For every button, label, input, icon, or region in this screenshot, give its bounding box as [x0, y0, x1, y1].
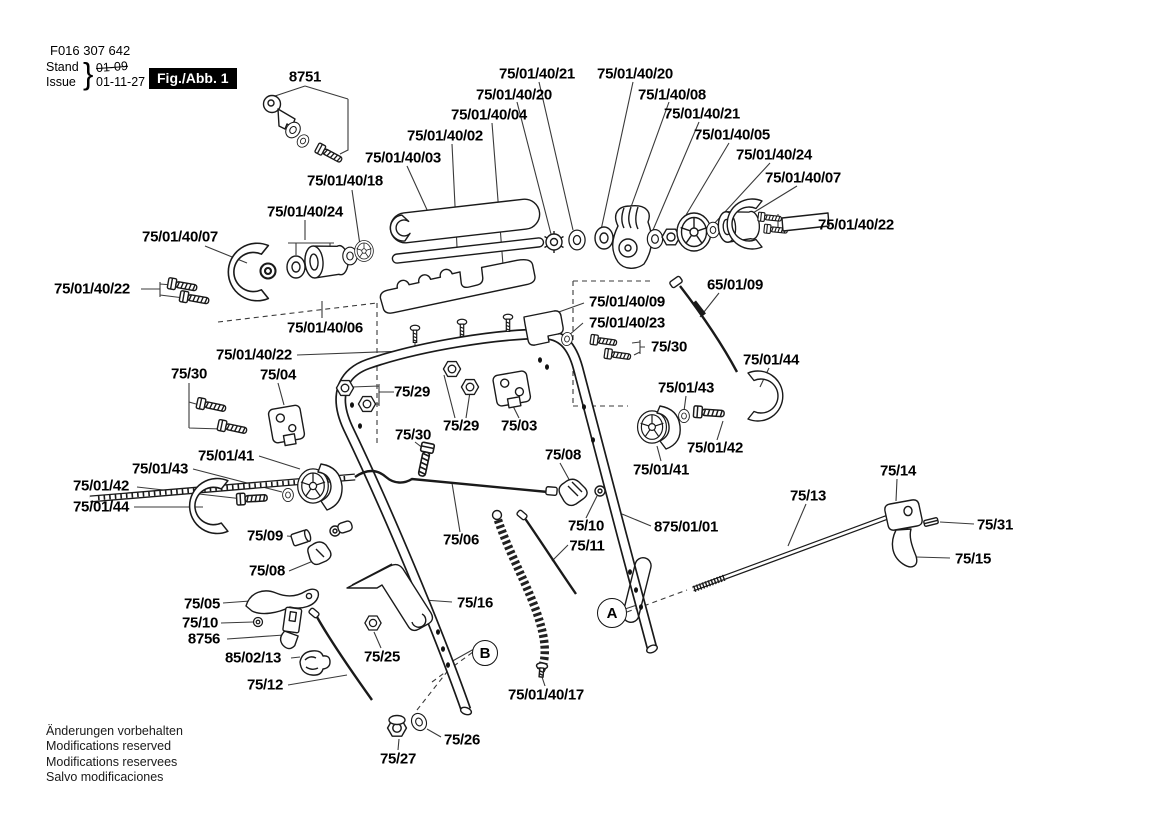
part-label: 75/01/40/18	[307, 174, 383, 189]
part-label: 75/01/40/02	[407, 129, 483, 144]
part-label: 75/01/40/03	[365, 151, 441, 166]
part-label: 75/01/44	[73, 500, 129, 515]
part-label: 75/01/40/24	[736, 148, 812, 163]
trigger-75-14-15	[885, 500, 922, 567]
part-label: 75/01/40/07	[765, 171, 841, 186]
part-label: 75/01/40/22	[54, 282, 130, 297]
part-label: 75/30	[395, 428, 431, 443]
strap-75-16	[347, 564, 432, 630]
part-label: 75/01/40/09	[589, 295, 665, 310]
part-label: 75/01/43	[132, 462, 188, 477]
issue-dates: 01-09 01-11-27	[96, 60, 145, 90]
part-label: 75/26	[444, 733, 480, 748]
part-label: 75/08	[545, 448, 581, 463]
part-label: 75/01/40/20	[597, 67, 673, 82]
part-label: 75/01/41	[198, 449, 254, 464]
part-label: 75/01/40/20	[476, 88, 552, 103]
part-label: 75/04	[260, 368, 296, 383]
stand-label: Stand	[46, 60, 79, 75]
part-label: 75/01/40/06	[287, 321, 363, 336]
screw-75-01-40-17	[536, 663, 548, 678]
part-label: 75/01/41	[633, 463, 689, 478]
part-label: 75/15	[955, 552, 991, 567]
modifications-notice-line: Modifications reserved	[46, 739, 183, 754]
part-label: 75/01/42	[687, 441, 743, 456]
part-label: 75/06	[443, 533, 479, 548]
part-label: 75/08	[249, 564, 285, 579]
part-label: 75/27	[380, 752, 416, 767]
view-marker-B: B	[472, 640, 498, 666]
view-marker-A: A	[597, 598, 627, 628]
part-label: 75/01/40/05	[694, 128, 770, 143]
clamp-75-08-mid	[559, 479, 605, 505]
modifications-notice-line: Modifications reservees	[46, 755, 183, 770]
part-label: 75/01/40/22	[818, 218, 894, 233]
part-label: 75/01/42	[73, 479, 129, 494]
parts-diagram-page: F016 307 642 Stand Issue } 01-09 01-11-2…	[0, 0, 1168, 825]
part-label: 75/29	[443, 419, 479, 434]
bracket-75-01-40-09	[524, 311, 573, 347]
part-label: 75/01/40/17	[508, 688, 584, 703]
part-label: 75/09	[247, 529, 283, 544]
lever-75-05	[246, 589, 318, 626]
part-label: 75/10	[568, 519, 604, 534]
part-label: 75/01/40/22	[216, 348, 292, 363]
part-label: 75/01/40/04	[451, 108, 527, 123]
figure-label-badge: Fig./Abb. 1	[149, 68, 237, 89]
roller-cover	[389, 198, 541, 245]
height-knob	[613, 206, 652, 269]
roller-tray	[378, 258, 537, 314]
part-label: 75/01/40/21	[664, 107, 740, 122]
bracket-75-03	[492, 370, 531, 409]
bushings-75-09	[291, 520, 354, 564]
part-label: 75/03	[501, 419, 537, 434]
part-label: 875/01/01	[654, 520, 718, 535]
bracket-75-04	[268, 405, 306, 448]
part-label: 75/11	[569, 539, 604, 554]
part-label: 75/10	[182, 616, 218, 631]
part-label: 65/01/09	[707, 278, 763, 293]
capnut-75-27	[388, 716, 407, 737]
part-label: 75/05	[184, 597, 220, 612]
part-label: 75/30	[171, 367, 207, 382]
modifications-notice: Änderungen vorbehaltenModifications rese…	[46, 724, 183, 786]
part-label: 75/01/43	[658, 381, 714, 396]
part-label: 75/1/40/08	[638, 88, 706, 103]
stand-issue-brace: }	[83, 56, 93, 92]
part-label: 85/02/13	[225, 651, 281, 666]
part-label: 75/01/40/23	[589, 316, 665, 331]
part-label: 8756	[188, 632, 220, 647]
part-label: 75/29	[394, 385, 430, 400]
part-label: 75/16	[457, 596, 493, 611]
exploded-view-artwork	[0, 0, 1168, 825]
modifications-notice-line: Änderungen vorbehalten	[46, 724, 183, 739]
part-label: 75/01/40/24	[267, 205, 343, 220]
part-label: 75/01/40/21	[499, 67, 575, 82]
clip-85-02-13	[300, 651, 330, 675]
modifications-notice-line: Salvo modificaciones	[46, 770, 183, 785]
superseded-date: 01-09	[96, 59, 129, 76]
issue-date: 01-11-27	[96, 75, 145, 90]
part-label: 75/14	[880, 464, 916, 479]
part-label: 75/25	[364, 650, 400, 665]
part-label: 75/01/40/07	[142, 230, 218, 245]
part-label: 75/13	[790, 489, 826, 504]
part-label: 75/01/44	[743, 353, 799, 368]
part-label: 75/31	[977, 518, 1013, 533]
issue-label: Issue	[46, 75, 79, 90]
part-label: 8751	[289, 70, 321, 85]
key-assembly-8751	[264, 96, 344, 165]
bracket-8756	[279, 607, 302, 650]
part-label: 75/12	[247, 678, 283, 693]
part-label: 75/30	[651, 340, 687, 355]
stand-issue-labels: Stand Issue	[46, 60, 79, 90]
